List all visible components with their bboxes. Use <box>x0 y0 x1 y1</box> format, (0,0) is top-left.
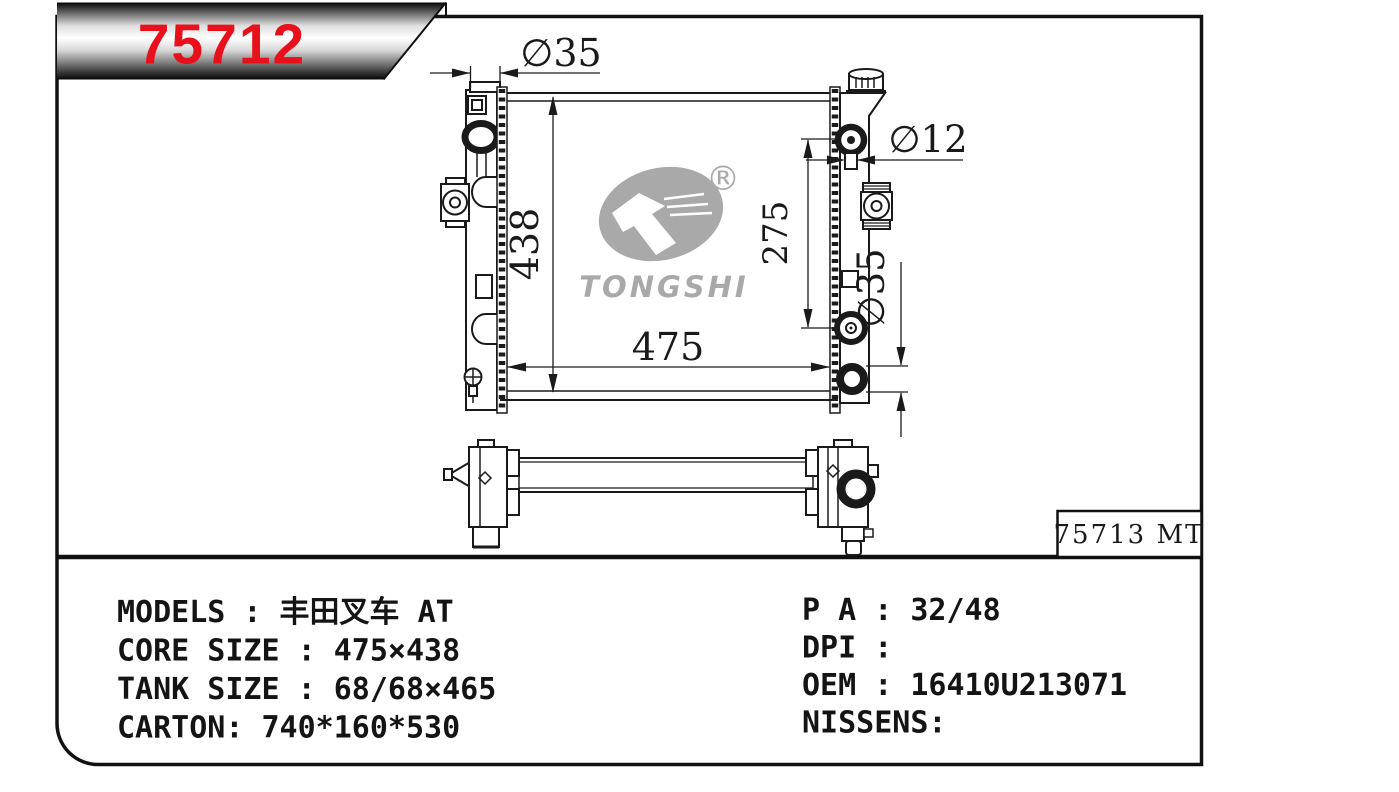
outlet-pipe <box>840 367 864 391</box>
upper-port <box>472 177 497 207</box>
part-number: 75712 <box>138 13 307 77</box>
inlet-pipe <box>465 124 497 151</box>
dim-small-pipe-diameter-text: ∅12 <box>888 118 967 161</box>
side-lower-pipe-left <box>473 527 499 547</box>
radiator-side-view <box>444 440 878 555</box>
dim-core-height-text: 438 <box>503 208 547 281</box>
inlet-neck <box>470 82 500 92</box>
side-drain <box>846 541 861 555</box>
specs-right: P A : 32/48 DPI : OEM : 16410U213071 NIS… <box>802 593 1127 741</box>
lower-port <box>472 314 497 344</box>
brand-registered-mark: ® <box>706 159 740 199</box>
right-tank <box>837 69 892 403</box>
spec-line-tank-size: TANK SIZE : 68/68×465 <box>117 672 496 707</box>
catalog-sheet: 75713 MT 75712 ® TONGSHI <box>0 0 1399 792</box>
brand-wordmark: TONGSHI <box>579 270 748 304</box>
dim-pipe-spacing: 275 <box>756 139 838 328</box>
dim-core-width: 475 <box>507 325 830 372</box>
technical-drawing-canvas: 75713 MT 75712 ® TONGSHI <box>0 0 1399 792</box>
mounting-bracket-left <box>441 178 469 227</box>
dim-inlet-diameter-text: ∅35 <box>520 31 601 75</box>
spec-line-pa: P A : 32/48 <box>802 593 1001 628</box>
mounting-bracket-right <box>861 183 892 229</box>
variant-label: 75713 MT <box>1054 520 1205 550</box>
brand-watermark: ® TONGSHI <box>579 154 748 304</box>
spec-line-models: MODELS : 丰田叉车 AT <box>117 595 454 630</box>
spec-line-oem: OEM : 16410U213071 <box>802 668 1127 703</box>
part-number-banner: 75712 <box>57 3 446 80</box>
spec-line-dpi: DPI : <box>802 631 892 666</box>
filler-cap <box>846 69 886 91</box>
side-core <box>519 458 813 492</box>
specs-left: MODELS : 丰田叉车 AT CORE SIZE : 475×438 TAN… <box>117 595 496 746</box>
dim-core-width-text: 475 <box>632 325 705 369</box>
dim-pipe-spacing-text: 275 <box>756 201 796 266</box>
dim-inlet-diameter: ∅35 <box>430 31 602 88</box>
side-outlet-pipe <box>841 474 871 504</box>
spec-line-carton: CARTON: 740*160*530 <box>117 711 460 746</box>
spec-line-core-size: CORE SIZE : 475×438 <box>117 634 460 669</box>
left-tank <box>441 82 500 410</box>
side-left-tank <box>469 447 507 527</box>
dim-core-height: 438 <box>503 96 558 393</box>
dim-outlet-diameter-text: ∅35 <box>850 248 893 327</box>
spec-line-nissens: NISSENS: <box>802 706 947 741</box>
